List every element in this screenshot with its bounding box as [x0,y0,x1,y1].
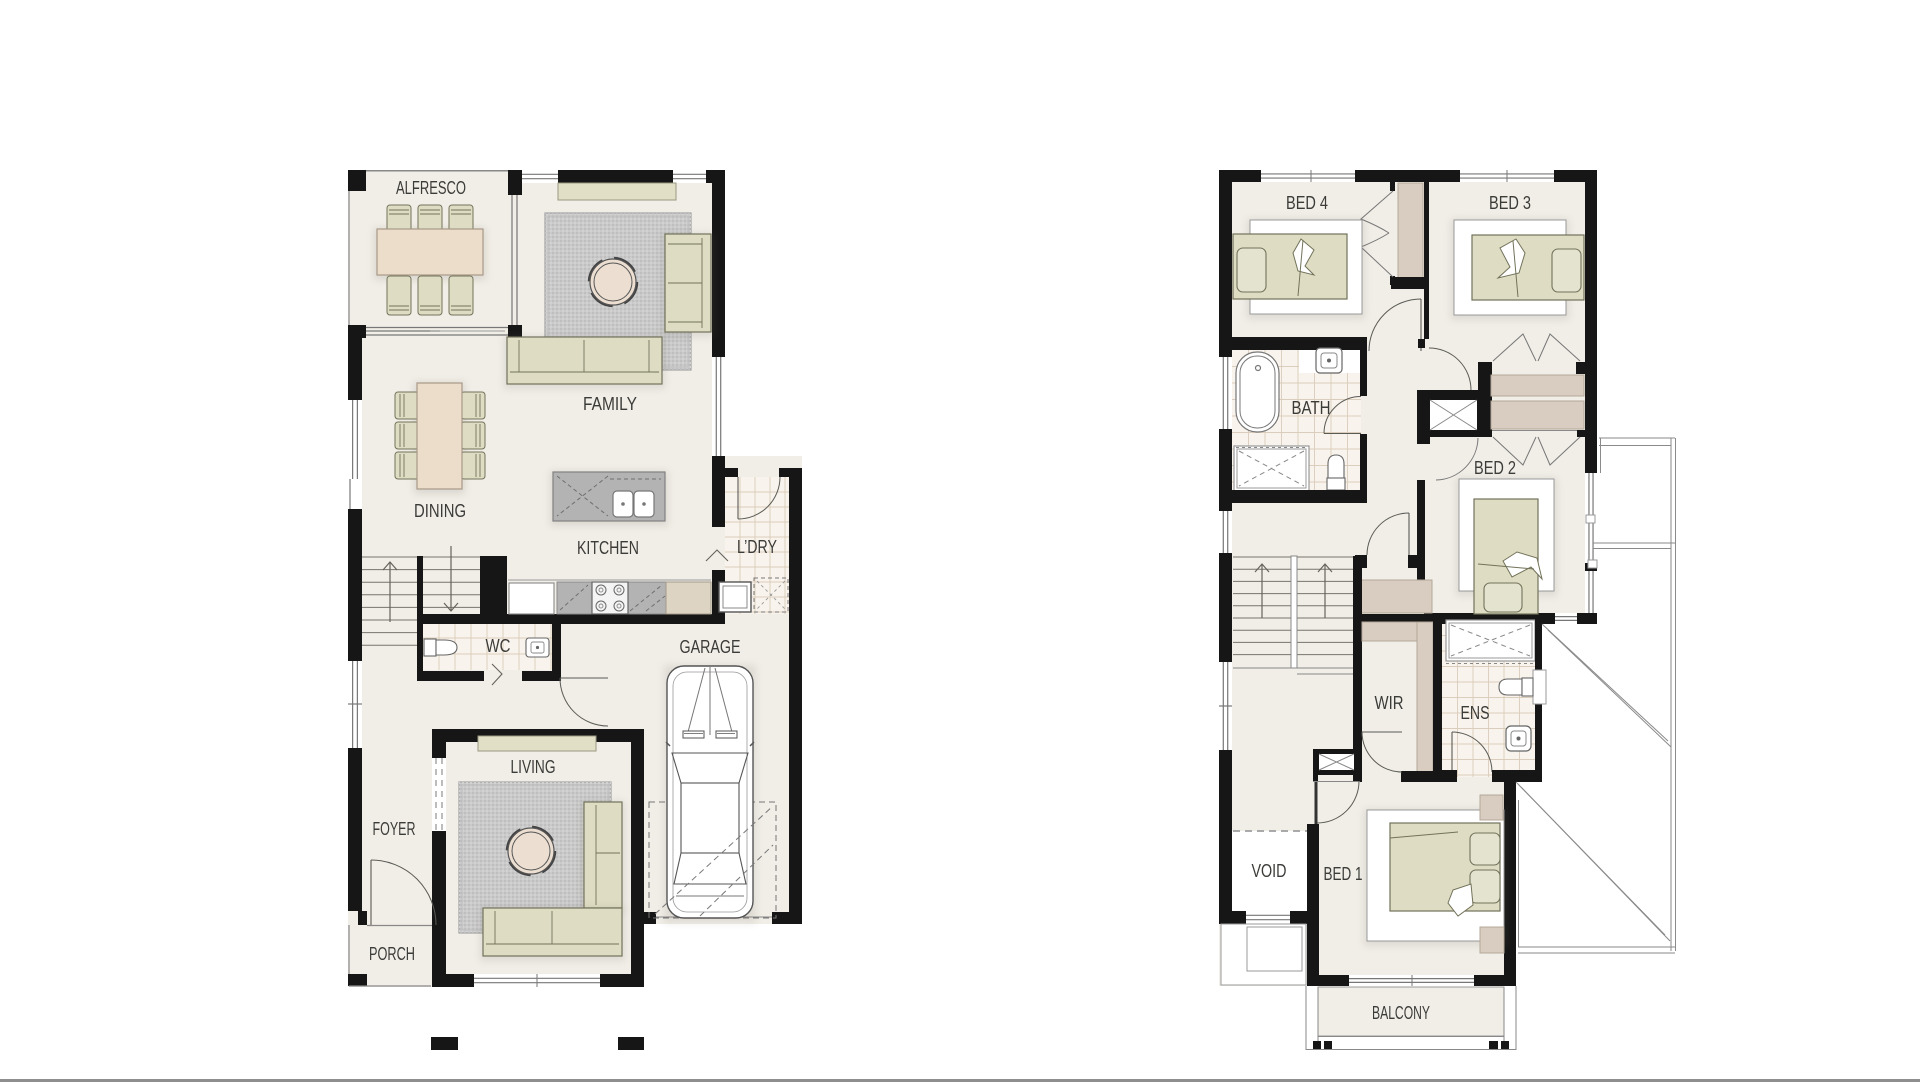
svg-text:KITCHEN: KITCHEN [577,538,639,558]
svg-text:WC: WC [486,636,511,656]
svg-text:BED 3: BED 3 [1489,193,1531,213]
svg-text:ENS: ENS [1461,703,1490,723]
svg-text:BED 1: BED 1 [1324,864,1363,884]
svg-text:L’DRY: L’DRY [737,537,777,557]
svg-text:FOYER: FOYER [373,819,416,839]
svg-text:PORCH: PORCH [369,944,415,964]
svg-text:DINING: DINING [414,501,466,521]
svg-text:WIR: WIR [1375,693,1404,713]
svg-text:GARAGE: GARAGE [680,637,741,657]
svg-text:LIVING: LIVING [511,757,556,777]
svg-text:BED 2: BED 2 [1474,458,1516,478]
svg-text:BALCONY: BALCONY [1372,1003,1430,1023]
svg-text:VOID: VOID [1252,861,1287,881]
svg-text:BATH: BATH [1292,398,1331,418]
svg-text:BED 4: BED 4 [1286,193,1328,213]
svg-text:ALFRESCO: ALFRESCO [396,178,466,198]
svg-text:FAMILY: FAMILY [583,394,637,414]
